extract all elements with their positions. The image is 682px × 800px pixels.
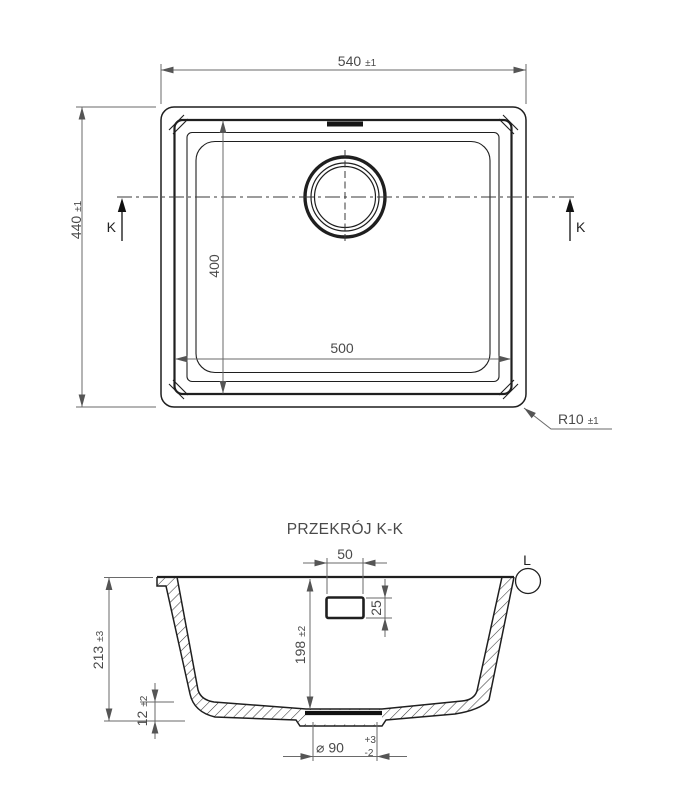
section-cut-line: K K (107, 197, 586, 241)
dim-overall-width-text: 540±1 (338, 53, 377, 69)
top-view: K K 540±1 440±1 500 400 (68, 53, 612, 429)
dim-overflow-width-text: 50 (337, 546, 353, 562)
dim-drain-diameter: ⌀ 90 +3 -2 (283, 722, 407, 761)
detail-marker-L: L (516, 552, 541, 594)
section-label-left: K (107, 219, 117, 235)
section-arrow-right (566, 198, 574, 212)
dim-bowl-width: 500 (175, 340, 511, 359)
dim-drain-diameter-text: ⌀ 90 (316, 740, 344, 756)
dim-drain-tol-minus: -2 (365, 748, 374, 759)
section-body (157, 577, 514, 726)
dim-base-thickness-text: 12±2 (134, 695, 150, 726)
dim-bowl-width-text: 500 (330, 340, 354, 356)
detail-label: L (523, 552, 531, 568)
dim-base-thickness: 12±2 (134, 683, 174, 739)
section-title: PRZEKRÓJ K-K (287, 521, 404, 538)
dim-overall-height: 440±1 (68, 107, 156, 407)
dim-overflow-height: 25 (366, 579, 392, 637)
dim-corner-radius: R10±1 (524, 408, 612, 429)
overflow-slot (327, 122, 363, 127)
dim-bowl-height-text: 400 (206, 254, 222, 278)
dim-corner-radius-text: R10±1 (558, 411, 599, 427)
overflow-hole-section (327, 598, 364, 619)
dim-drain-tol-plus: +3 (365, 735, 377, 746)
section-arrow-left (118, 198, 126, 212)
dim-overflow-height-text: 25 (368, 600, 384, 616)
dim-total-depth-text: 213±3 (90, 630, 106, 669)
dim-bowl-height: 400 (206, 121, 223, 394)
dim-bowl-inner-depth: 198±2 (292, 579, 310, 709)
sink-technical-drawing: K K 540±1 440±1 500 400 (0, 0, 682, 800)
section-view: PRZEKRÓJ K-K L 213±3 (90, 521, 541, 761)
dim-overall-width: 540±1 (161, 53, 526, 104)
section-label-right: K (576, 219, 586, 235)
dim-bowl-inner-depth-text: 198±2 (292, 625, 308, 664)
dim-overflow-width: 50 (303, 546, 387, 594)
technical-drawing-page: K K 540±1 440±1 500 400 (0, 0, 682, 800)
dim-overall-height-text: 440±1 (68, 200, 84, 239)
